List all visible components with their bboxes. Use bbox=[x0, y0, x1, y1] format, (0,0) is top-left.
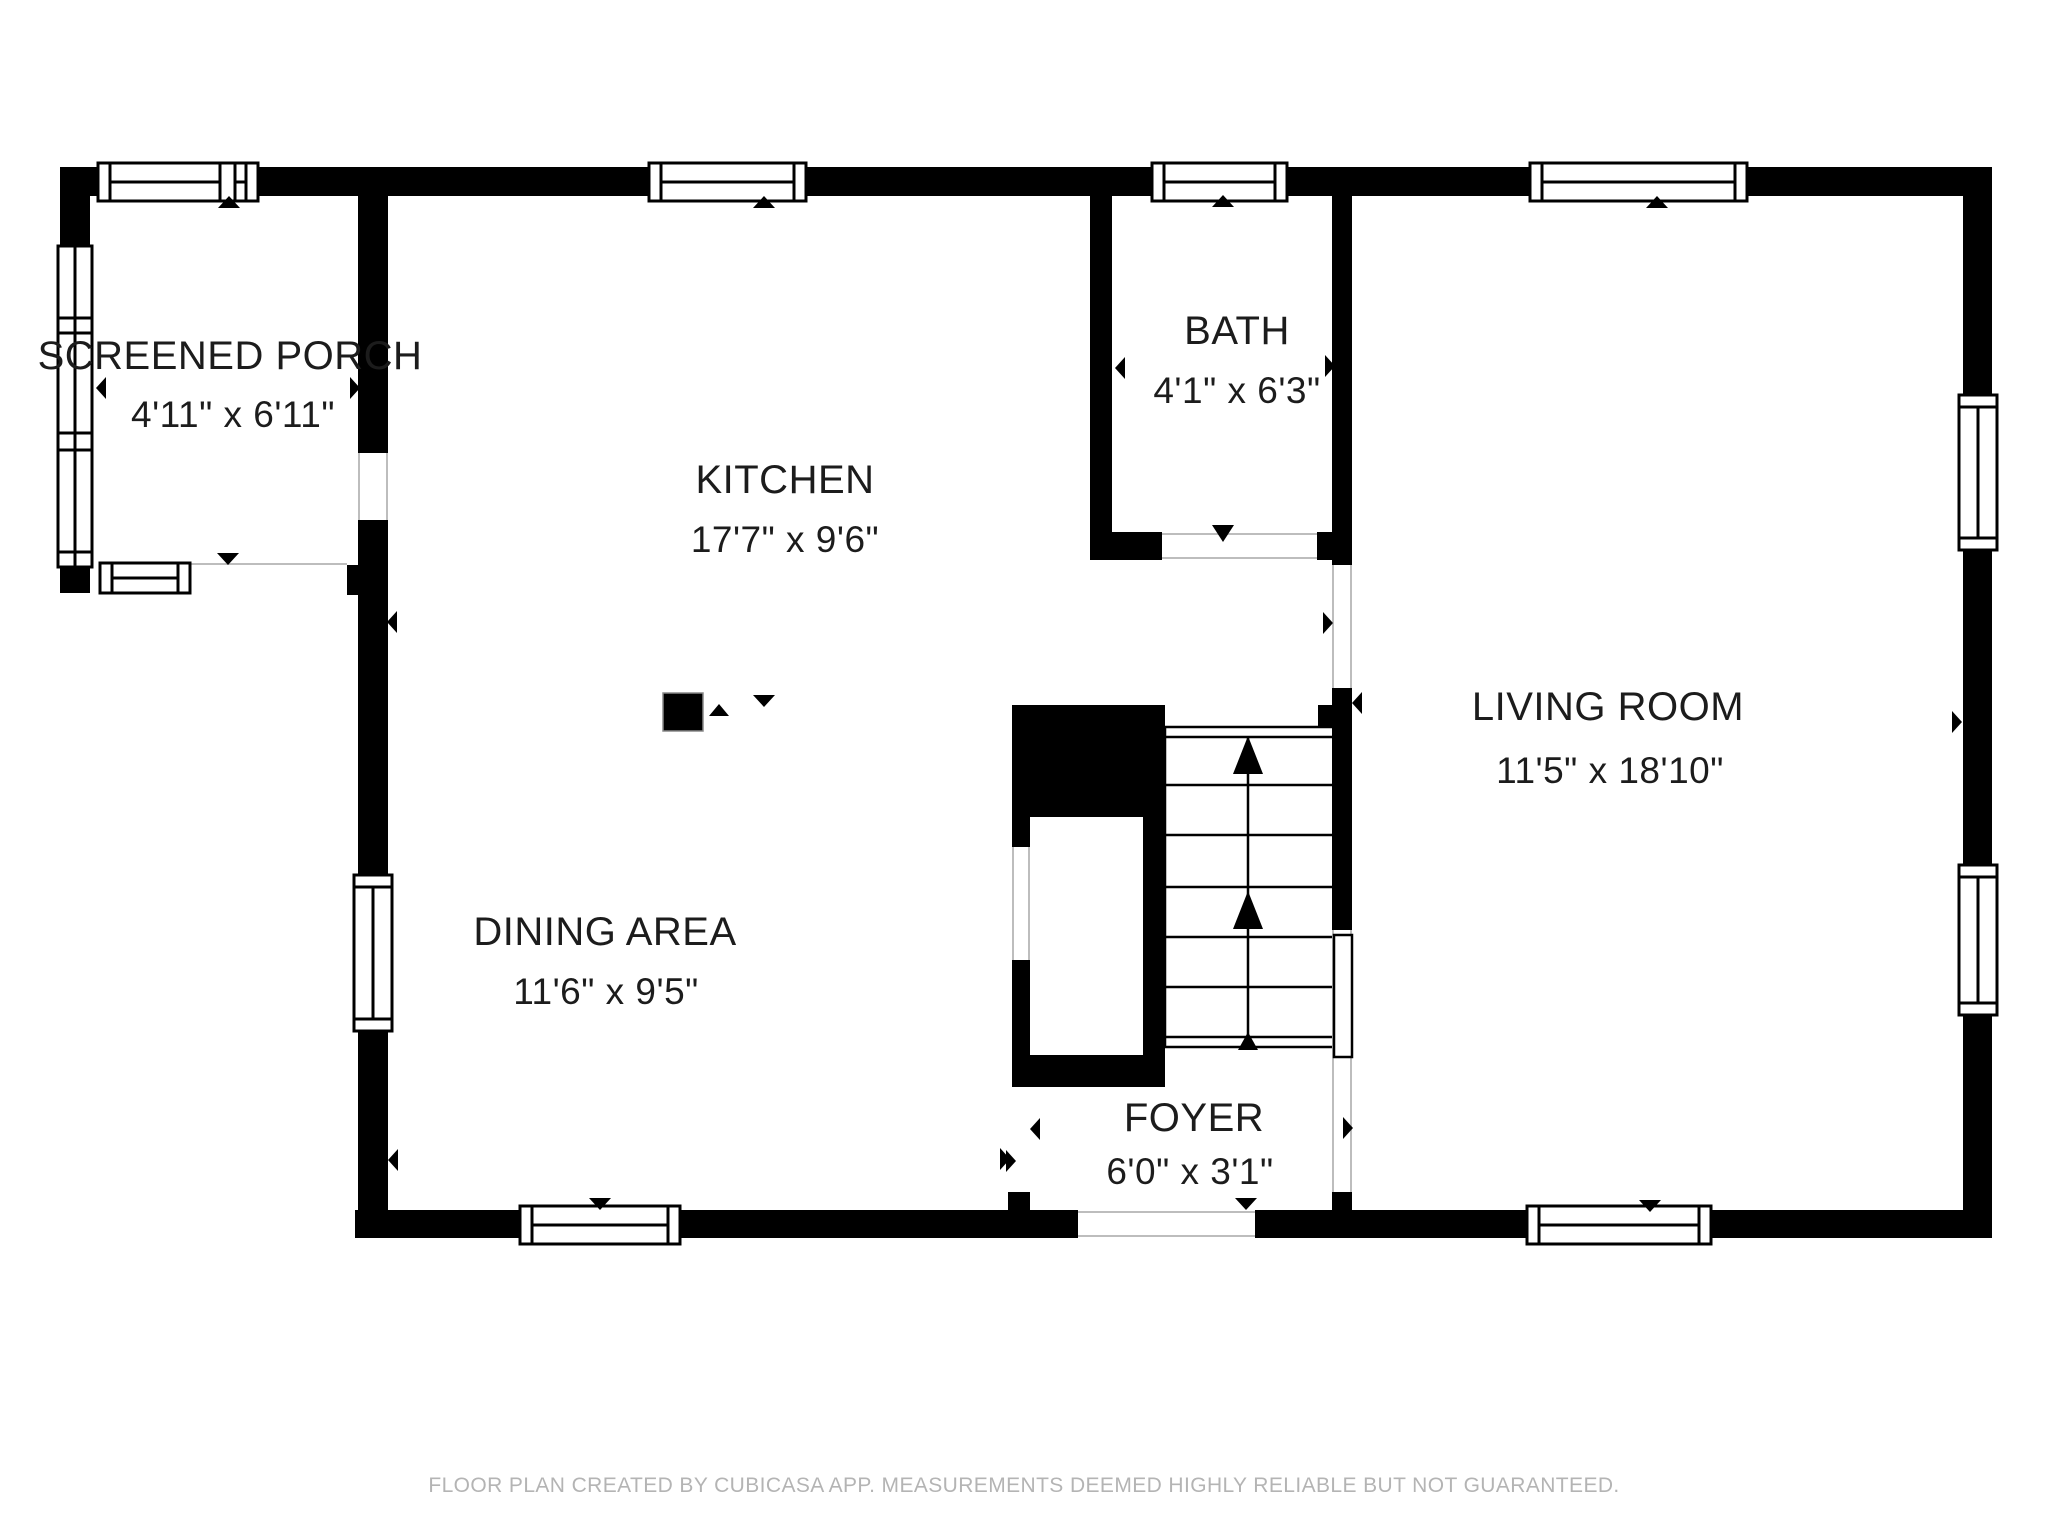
room-label-foyer: FOYER bbox=[1124, 1096, 1264, 1140]
kitchen-top-window bbox=[649, 163, 806, 201]
wall-kitchen-bath bbox=[1090, 196, 1112, 560]
kitchen-span-marker-left-icon bbox=[387, 611, 397, 633]
room-dim-bath: 4'1" x 6'3" bbox=[1153, 370, 1320, 411]
porch-left-bottom-corner bbox=[60, 567, 90, 593]
room-dim-screened-porch: 4'11" x 6'11" bbox=[131, 394, 335, 435]
living-right-window-lower bbox=[1959, 865, 1997, 1015]
living-top-window bbox=[1530, 163, 1747, 201]
porch-top-window bbox=[98, 163, 258, 201]
room-label-dining-area: DINING AREA bbox=[473, 910, 736, 954]
room-labels: SCREENED PORCH 4'11" x 6'11" KITCHEN 17'… bbox=[38, 309, 1745, 1192]
passage-door-marker-right-icon bbox=[1323, 612, 1333, 634]
stairs-up-arrow-icon bbox=[1233, 891, 1263, 929]
floor-plan-page: SCREENED PORCH 4'11" x 6'11" KITCHEN 17'… bbox=[0, 0, 2048, 1536]
porch-bottom-stub bbox=[347, 565, 358, 595]
living-bottom-window bbox=[1527, 1206, 1711, 1244]
porch-left-window-strip bbox=[58, 246, 92, 567]
room-dim-kitchen: 17'7" x 9'6" bbox=[691, 519, 879, 560]
stairs-start-arrow-icon bbox=[1238, 1032, 1258, 1050]
foyer-span-marker-left-icon bbox=[1030, 1118, 1040, 1140]
wall-bath-living-upper bbox=[1332, 196, 1352, 565]
floor-plan-svg: SCREENED PORCH 4'11" x 6'11" KITCHEN 17'… bbox=[0, 0, 2048, 1536]
wall-stairs-living bbox=[1332, 688, 1352, 930]
porch-span-marker-left-icon bbox=[96, 377, 106, 399]
wall-bottom-left-of-front-door bbox=[355, 1210, 1078, 1238]
closet-left-wall-upper bbox=[1012, 817, 1030, 847]
living-right-window-upper bbox=[1959, 395, 1997, 550]
wall-foyer-living-stub bbox=[1332, 1192, 1352, 1210]
bath-span-marker-left-icon bbox=[1115, 357, 1125, 379]
room-label-bath: BATH bbox=[1184, 309, 1290, 353]
living-span-marker-right-icon bbox=[1952, 711, 1962, 733]
wall-right bbox=[1963, 167, 1992, 1238]
fireplace-block bbox=[663, 693, 703, 731]
stairs-up-arrow-icon bbox=[1233, 736, 1263, 774]
dining-left-window bbox=[354, 875, 392, 1031]
footer-disclaimer: FLOOR PLAN CREATED BY CUBICASA APP. MEAS… bbox=[428, 1474, 1619, 1497]
kitchen-fixture bbox=[663, 693, 775, 731]
bath-top-window bbox=[1152, 163, 1287, 201]
passage-door-marker-left-icon bbox=[1352, 692, 1362, 714]
room-dim-foyer: 6'0" x 3'1" bbox=[1106, 1151, 1273, 1192]
fixture-up-marker-icon bbox=[709, 704, 729, 716]
staircase bbox=[1165, 727, 1332, 1050]
closet-right-wall bbox=[1143, 817, 1165, 1087]
wall-left-upper bbox=[358, 196, 388, 453]
dining-bottom-window bbox=[520, 1206, 680, 1244]
foyer-left-stub bbox=[1008, 1192, 1030, 1210]
bath-bottom-wall-left bbox=[1090, 532, 1162, 560]
room-label-kitchen: KITCHEN bbox=[695, 458, 874, 502]
stair-landing-block bbox=[1012, 705, 1165, 817]
room-label-living-room: LIVING ROOM bbox=[1472, 685, 1744, 729]
foyer-living-door-leaf bbox=[1334, 935, 1352, 1057]
room-dim-living-room: 11'5" x 18'10" bbox=[1496, 750, 1724, 791]
closet-bottom-wall bbox=[1012, 1055, 1165, 1087]
dining-span-marker-left-icon bbox=[388, 1149, 398, 1171]
fixture-down-marker-icon bbox=[753, 695, 775, 707]
porch-bottom-window bbox=[100, 563, 190, 593]
wall-stairs-living-stub bbox=[1318, 705, 1332, 727]
porch-left-top-corner bbox=[60, 196, 90, 246]
room-label-screened-porch: SCREENED PORCH bbox=[38, 334, 423, 378]
room-dim-dining-area: 11'6" x 9'5" bbox=[513, 971, 699, 1012]
wall-left-lower bbox=[358, 520, 388, 1210]
front-door-marker-down-icon bbox=[1235, 1198, 1257, 1210]
